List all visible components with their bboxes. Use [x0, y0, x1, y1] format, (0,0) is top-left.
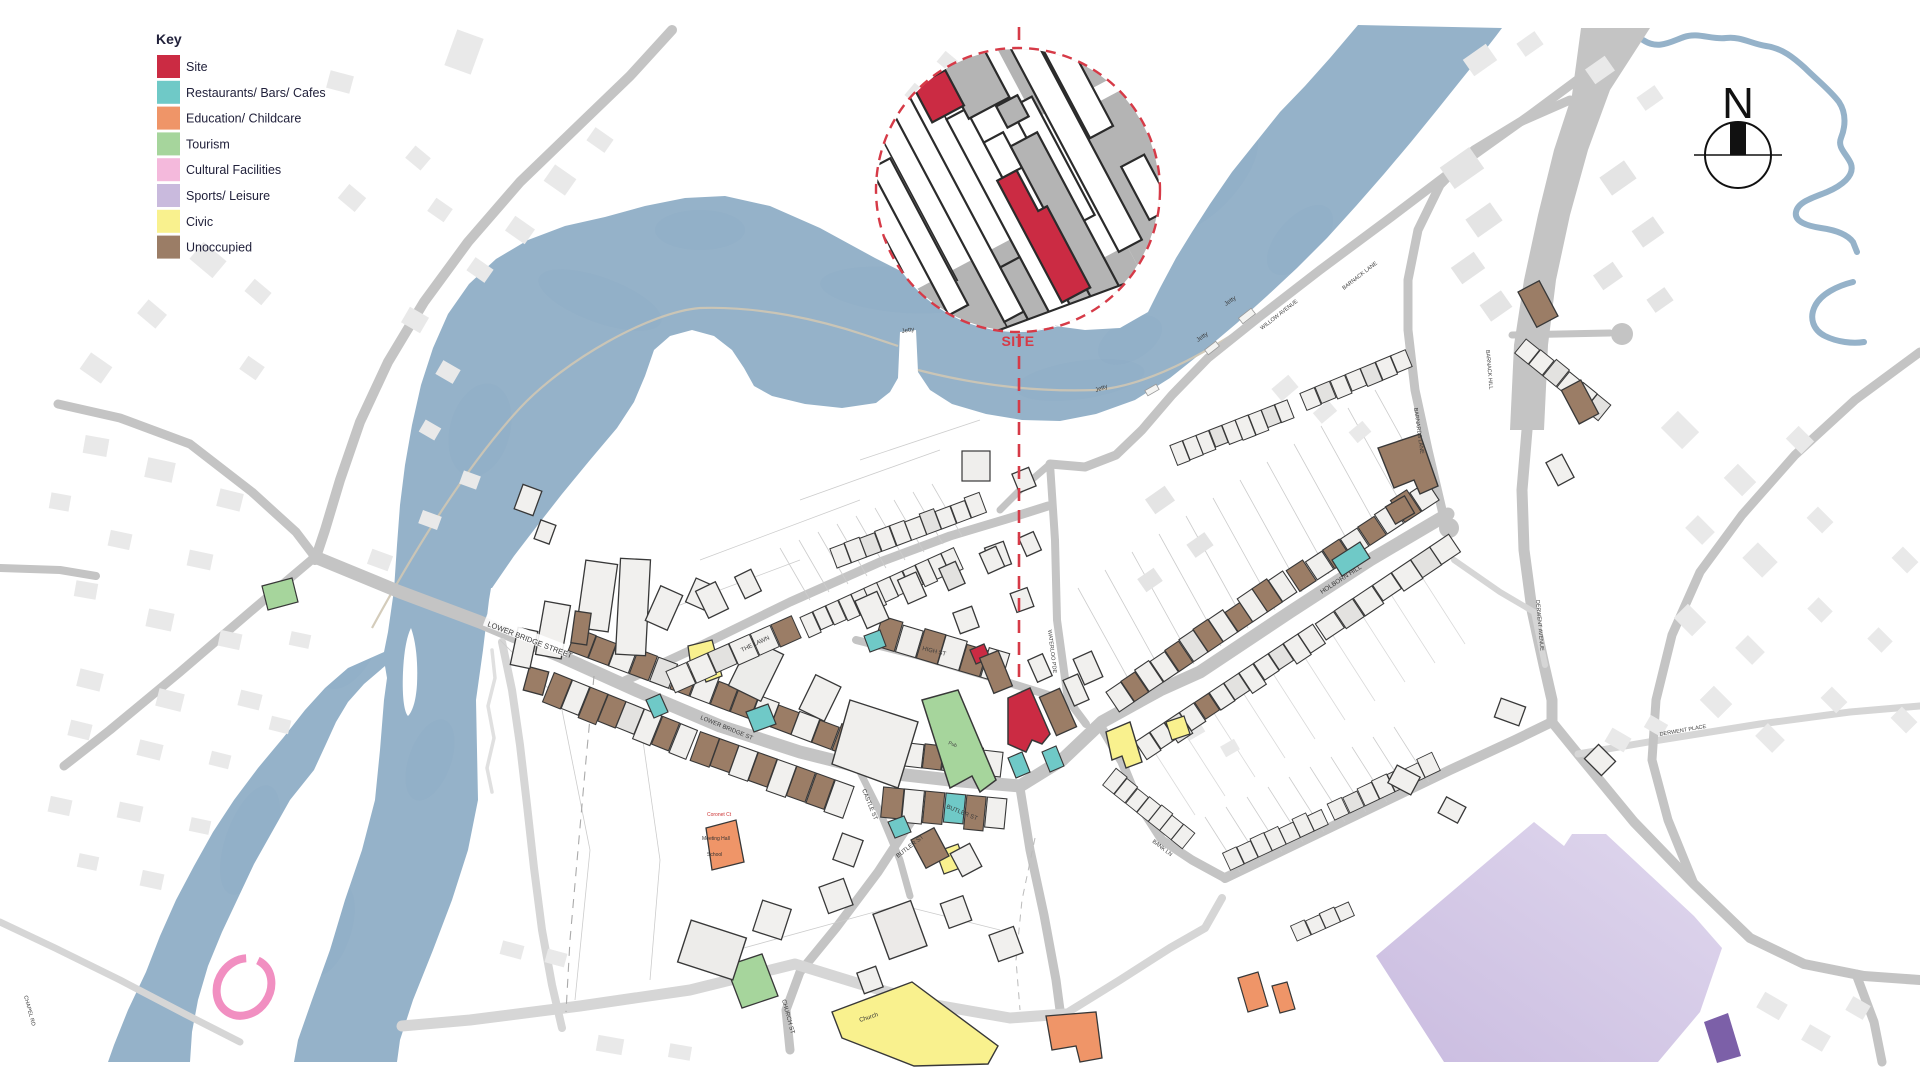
- svg-text:Civic: Civic: [186, 215, 213, 229]
- svg-text:Site: Site: [186, 60, 208, 74]
- svg-text:Meeting Hall: Meeting Hall: [702, 836, 730, 842]
- svg-text:Sports/ Leisure: Sports/ Leisure: [186, 189, 270, 203]
- svg-text:SITE: SITE: [1001, 333, 1034, 349]
- svg-text:Education/ Childcare: Education/ Childcare: [186, 112, 301, 126]
- svg-text:N: N: [1722, 79, 1754, 128]
- svg-text:Cultural Facilities: Cultural Facilities: [186, 163, 281, 177]
- svg-text:Restaurants/ Bars/ Cafes: Restaurants/ Bars/ Cafes: [186, 86, 326, 100]
- svg-text:Tourism: Tourism: [186, 137, 230, 151]
- svg-text:Key: Key: [156, 31, 182, 47]
- svg-text:School: School: [707, 852, 722, 858]
- svg-text:Coronet Ct: Coronet Ct: [707, 812, 732, 818]
- svg-text:Unoccupied: Unoccupied: [186, 241, 252, 255]
